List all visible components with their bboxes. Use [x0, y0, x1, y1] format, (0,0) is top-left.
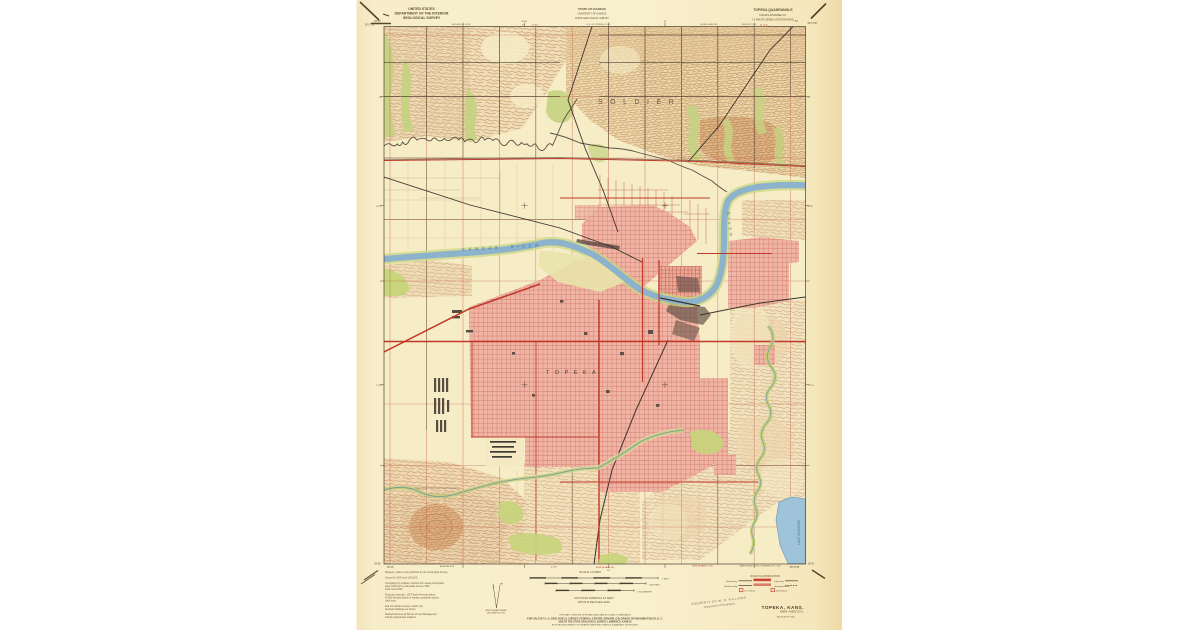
svg-text:DEPARTMENT OF THE INTERIOR: DEPARTMENT OF THE INTERIOR — [395, 12, 449, 16]
svg-text:Light-duty: Light-duty — [774, 580, 785, 583]
svg-text:42'30": 42'30" — [551, 567, 557, 569]
svg-text:Topography by multiplex method: Topography by multiplex methods from aer… — [385, 582, 445, 585]
svg-text:Heavy-duty: Heavy-duty — [726, 580, 738, 583]
svg-text:T 12 S: T 12 S — [808, 385, 815, 387]
svg-text:Medium-duty: Medium-duty — [724, 585, 738, 588]
svg-text:T 12 S: T 12 S — [376, 385, 383, 387]
svg-text:U. S. 24 TOPEKA 1.5 MI.: U. S. 24 TOPEKA 1.5 MI. — [586, 23, 611, 26]
svg-text:THIS MAP COMPLIES WITH NATIONA: THIS MAP COMPLIES WITH NATIONAL MAP ACCU… — [559, 614, 631, 617]
svg-text:APPROXIMATE MEAN: APPROXIMATE MEAN — [486, 609, 507, 612]
svg-text:N3900—W9537.5/7.5: N3900—W9537.5/7.5 — [780, 611, 804, 614]
svg-text:Red tint indicates areas in wh: Red tint indicates areas in which only — [385, 605, 424, 608]
svg-text:indicate approximate locations: indicate approximate locations — [385, 616, 417, 619]
svg-text:95°37'30": 95°37'30" — [790, 566, 800, 569]
svg-text:1 KILOMETER: 1 KILOMETER — [637, 592, 652, 594]
svg-text:U. S. Route: U. S. Route — [744, 590, 756, 593]
svg-text:ROSSVILLE 14 MI.: ROSSVILLE 14 MI. — [452, 24, 471, 26]
svg-text:GEOLOGICAL SURVEY: GEOLOGICAL SURVEY — [403, 16, 441, 20]
svg-text:Control by USGS and USC&GS: Control by USGS and USC&GS — [385, 577, 418, 580]
svg-text:45': 45' — [795, 20, 799, 23]
svg-text:CARBONDALE 9 MI. OVERBROOK 14: CARBONDALE 9 MI. OVERBROOK 14 MI. — [739, 565, 781, 568]
svg-text:02'30": 02'30" — [376, 206, 382, 208]
svg-text:BURLINGAME 12 MI.: BURLINGAME 12 MI. — [692, 565, 714, 568]
svg-text:1 MILE: 1 MILE — [662, 579, 669, 581]
svg-text:north zone: north zone — [385, 600, 397, 603]
svg-text:AND BY THE STATE GEOLOGICAL SU: AND BY THE STATE GEOLOGICAL SURVEY, LAWR… — [558, 621, 632, 624]
svg-text:7.5 MINUTE SERIES (TOPOGRAPHIC: 7.5 MINUTE SERIES (TOPOGRAPHIC) — [752, 18, 795, 21]
svg-text:42'30": 42'30" — [532, 25, 538, 27]
svg-text:EDITION OF 1951: EDITION OF 1951 — [777, 617, 796, 619]
svg-text:A FOLDER DESCRIBING TOPOGRAPHI: A FOLDER DESCRIBING TOPOGRAPHIC MAPS AND… — [552, 623, 639, 626]
svg-text:BURLINGAME RD.: BURLINGAME RD. — [596, 566, 615, 569]
svg-text:Dashed land lines by Bureau of: Dashed land lines by Bureau of Land Mana… — [385, 613, 437, 616]
svg-text:TOPEKA QUADRANGLE: TOPEKA QUADRANGLE — [753, 8, 793, 12]
svg-text:STATE OF KANSAS: STATE OF KANSAS — [578, 7, 606, 11]
svg-text:KANSAS-SHAWNEE CO.: KANSAS-SHAWNEE CO. — [759, 14, 787, 17]
svg-text:UNITED STATES: UNITED STATES — [408, 7, 435, 11]
svg-text:taken 1948 and by planetable s: taken 1948 and by planetable surveys 195… — [385, 585, 430, 588]
svg-text:SCALE 1:24000: SCALE 1:24000 — [579, 570, 601, 574]
svg-text:MN: MN — [500, 584, 504, 586]
svg-text:42'30": 42'30" — [521, 21, 527, 23]
svg-text:95°45': 95°45' — [387, 566, 394, 569]
svg-text:TOPEKA, KANS.: TOPEKA, KANS. — [762, 605, 804, 610]
svg-text:SILVER LAKE RD.: SILVER LAKE RD. — [700, 23, 719, 26]
svg-text:39°00': 39°00' — [374, 563, 381, 566]
svg-text:Polyconic projection. 1927 No: Polyconic projection. 1927 North America… — [385, 594, 435, 597]
svg-text:95°45': 95°45' — [374, 20, 381, 23]
svg-text:CONTOUR INTERVAL 10 FEET: CONTOUR INTERVAL 10 FEET — [574, 596, 614, 600]
svg-text:TOPEKA: TOPEKA — [546, 370, 601, 376]
svg-text:95°37'30": 95°37'30" — [808, 22, 818, 25]
svg-text:ROAD CLASSIFICATION: ROAD CLASSIFICATION — [750, 574, 779, 578]
svg-text:STATE GEOLOGICAL SURVEY: STATE GEOLOGICAL SURVEY — [575, 17, 609, 20]
svg-text:State Route: State Route — [776, 590, 788, 593]
svg-text:39°00': 39°00' — [808, 563, 815, 566]
svg-text:Mapped, edited, and published: Mapped, edited, and published by the Geo… — [385, 571, 448, 574]
svg-text:AUBURN 8 MI.: AUBURN 8 MI. — [440, 565, 455, 568]
svg-text:LAKE SHAWNEE: LAKE SHAWNEE — [797, 520, 801, 545]
svg-text:02'30": 02'30" — [808, 206, 814, 208]
svg-text:39°07'30": 39°07'30" — [365, 24, 375, 27]
svg-text:DECLINATION 1951: DECLINATION 1951 — [487, 611, 506, 614]
svg-text:ELMONT 5 MI.: ELMONT 5 MI. — [742, 24, 757, 26]
svg-text:7000 FEET: 7000 FEET — [649, 585, 661, 587]
svg-text:SOLDIER: SOLDIER — [598, 99, 681, 106]
svg-text:DATUM IS MEAN SEA LEVEL: DATUM IS MEAN SEA LEVEL — [578, 601, 611, 604]
svg-text:Field check 1950: Field check 1950 — [385, 589, 403, 591]
svg-text:landmark buildings are shown: landmark buildings are shown — [385, 608, 416, 611]
svg-text:10,000-foot grid based on Kans: 10,000-foot grid based on Kansas coordin… — [385, 597, 440, 600]
svg-text:UNIVERSITY OF KANSAS: UNIVERSITY OF KANSAS — [578, 13, 607, 16]
svg-text:Unimproved dirt: Unimproved dirt — [774, 585, 790, 588]
svg-text:FOR SALE BY U. S. GEOLOGICAL S: FOR SALE BY U. S. GEOLOGICAL SURVEY, FED… — [527, 618, 663, 621]
svg-text:R. 15 E.: R. 15 E. — [760, 25, 768, 27]
